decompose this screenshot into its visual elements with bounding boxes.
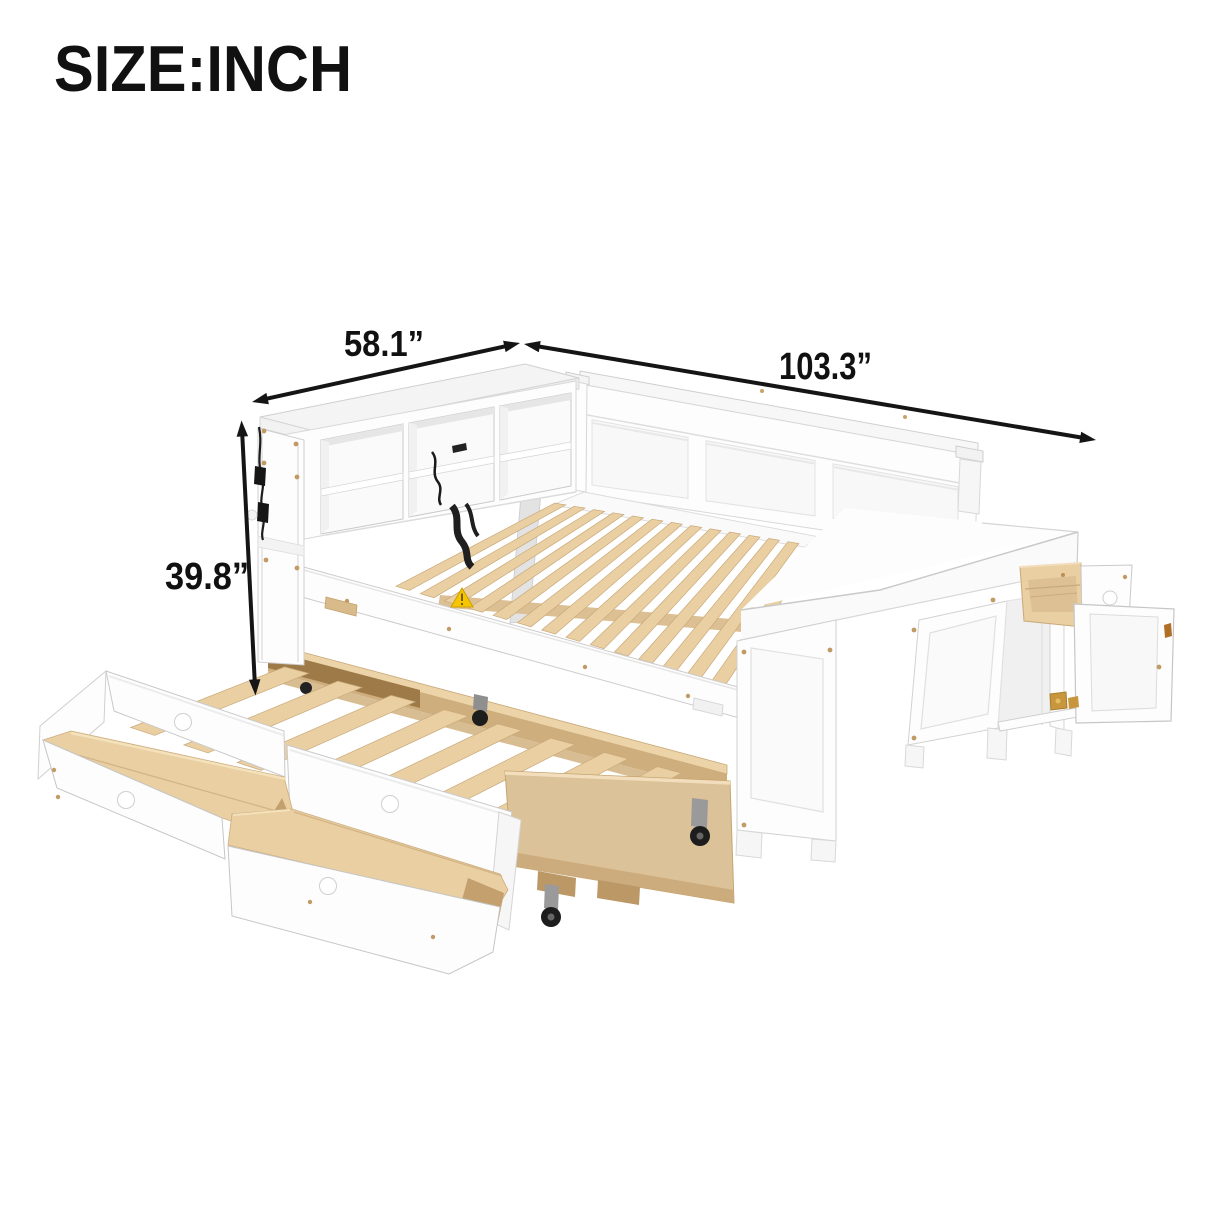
svg-text:SIZE:INCH: SIZE:INCH: [54, 32, 352, 105]
svg-text:103.3”: 103.3”: [779, 346, 872, 388]
svg-text:58.1”: 58.1”: [344, 323, 424, 364]
svg-text:39.8”: 39.8”: [165, 556, 249, 598]
